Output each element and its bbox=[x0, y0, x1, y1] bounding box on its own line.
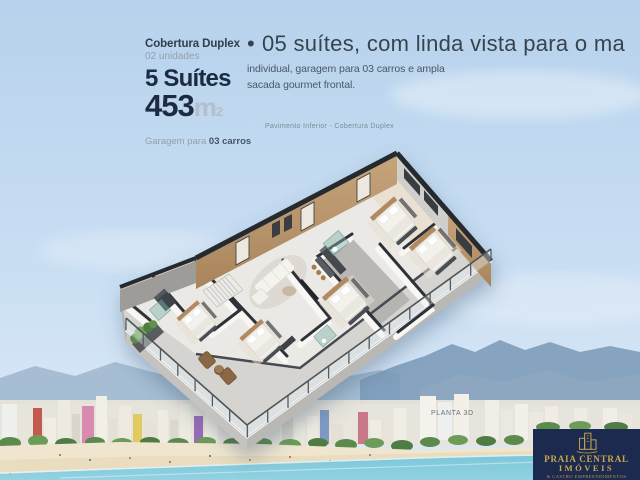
headline-paragraph: individual, garagem para 03 carros e amp… bbox=[247, 61, 640, 93]
headline-line2: individual, garagem para 03 carros e amp… bbox=[247, 61, 640, 77]
marketing-slide: Cobertura Duplex 02 unidades 5 Suítes 45… bbox=[0, 0, 640, 480]
headline-title: •05 suítes, com linda vista para o ma bbox=[247, 31, 640, 57]
buildings-icon bbox=[572, 432, 602, 454]
spec-area: 453m2 bbox=[145, 91, 265, 127]
garage-count: 03 carros bbox=[209, 136, 251, 147]
area-unit: m bbox=[194, 92, 216, 122]
headline-block: •05 suítes, com linda vista para o ma in… bbox=[247, 31, 640, 93]
logo-praia-central: PRAIA CENTRAL IMÓVEIS & CASTRO EMPREENDI… bbox=[533, 429, 640, 480]
headline-text: 05 suítes, com linda vista para o ma bbox=[262, 31, 625, 56]
headline-line3: sacada gourmet frontal. bbox=[247, 77, 640, 93]
logo-tagline: & CASTRO EMPREENDIMENTOS bbox=[533, 474, 640, 480]
floorplan-watermark: PLANTA 3D bbox=[431, 410, 474, 417]
floorplan-caption: Pavimento Inferior - Cobertura Duplex bbox=[265, 123, 394, 130]
bullet-icon: • bbox=[247, 31, 255, 56]
logo-name-line2: IMÓVEIS bbox=[533, 464, 640, 473]
area-exponent: 2 bbox=[216, 104, 223, 119]
area-value: 453 bbox=[145, 88, 194, 123]
spec-garage: Garagem para 03 carros bbox=[145, 136, 265, 147]
coffee-table bbox=[282, 286, 296, 296]
